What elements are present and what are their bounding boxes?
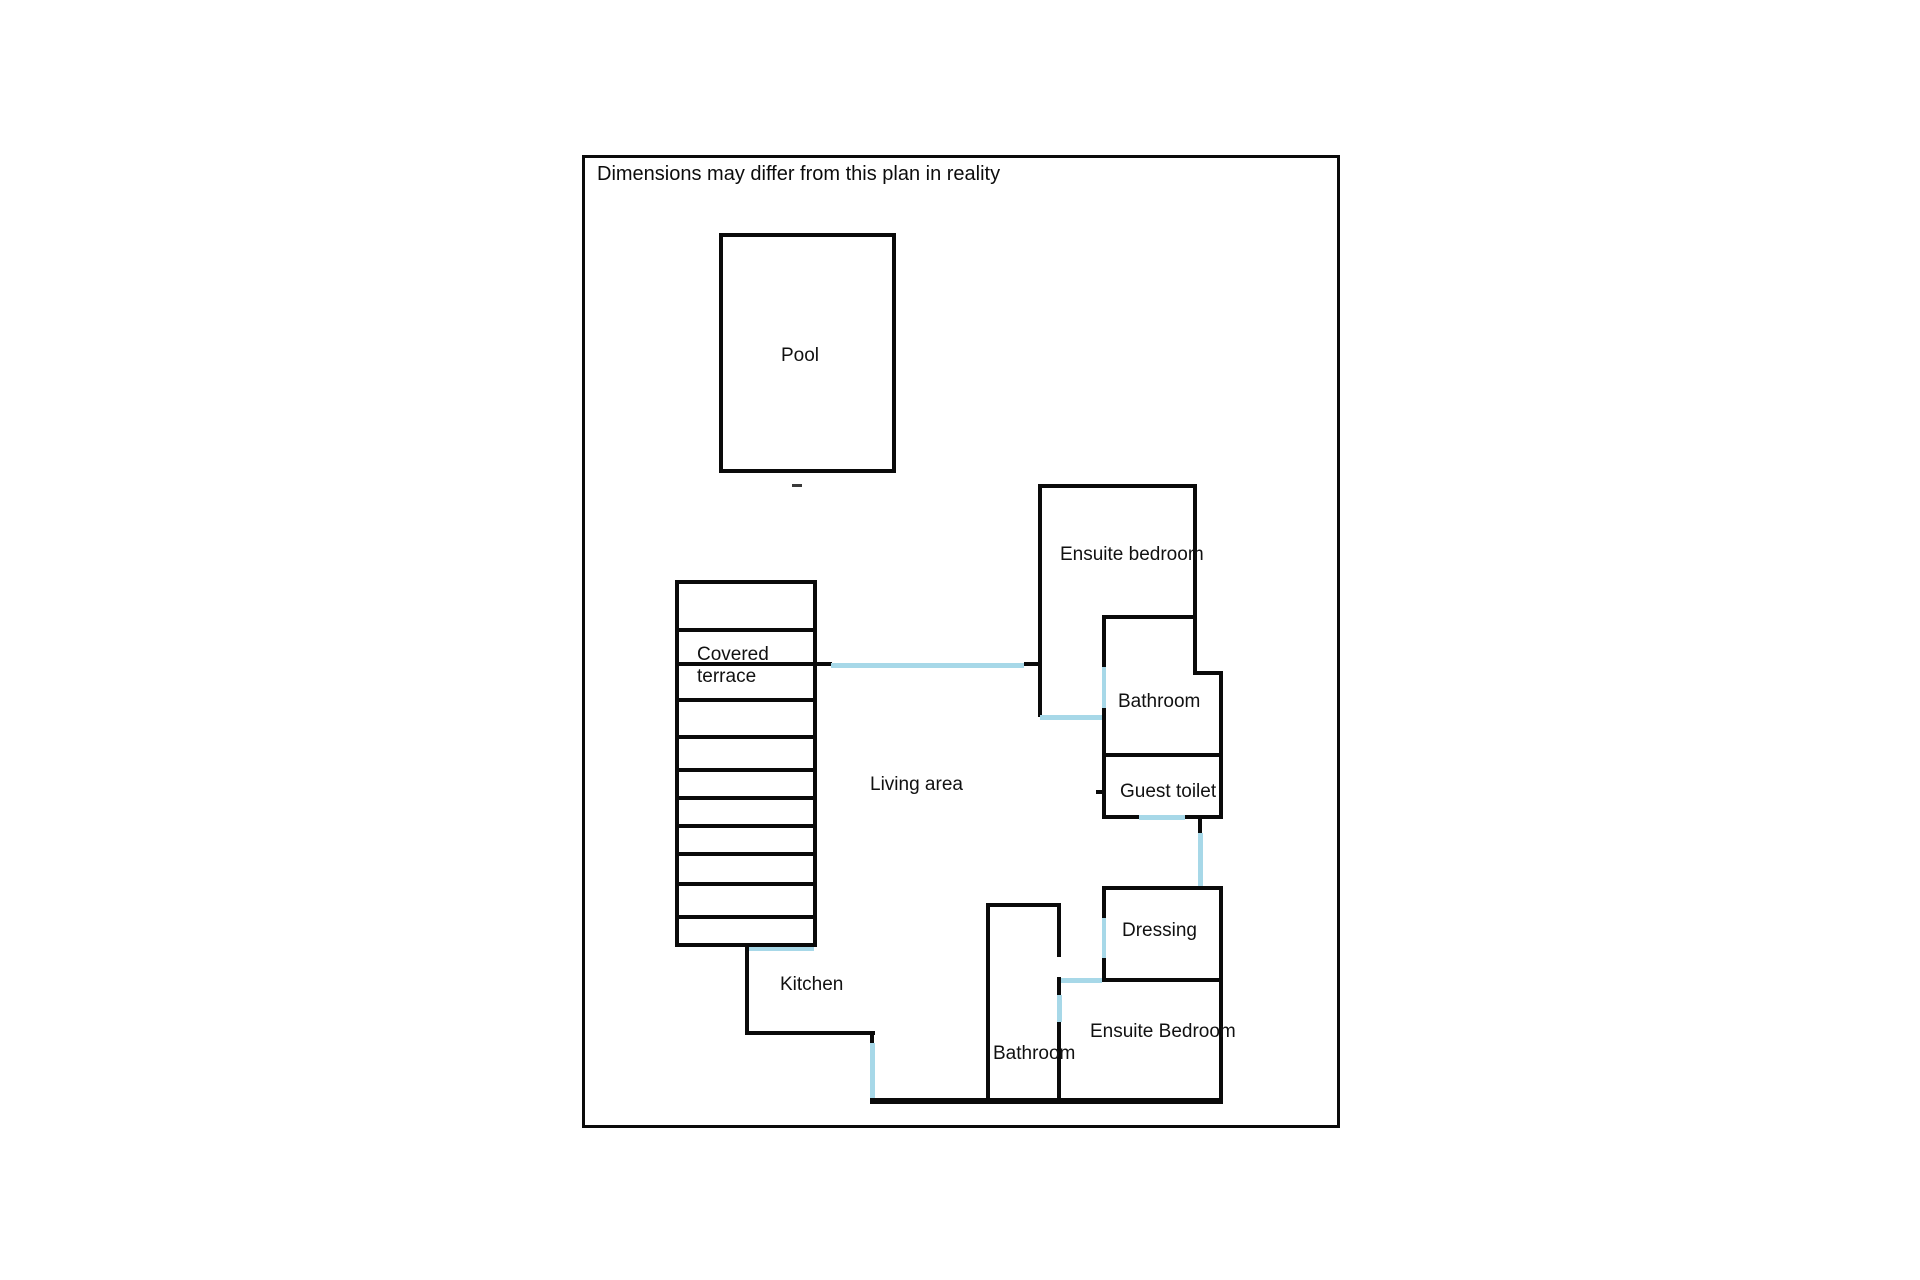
living-area-label: Living area: [870, 774, 963, 796]
covered-terrace-label-line1: Covered: [697, 644, 769, 666]
bathroom-lower-right-wall: [1057, 903, 1061, 957]
ensuite-bedroom-upper-left-wall: [1038, 484, 1042, 717]
pool-label: Pool: [781, 345, 819, 367]
corridor-opening: [1198, 833, 1203, 886]
plan-disclaimer: Dimensions may differ from this plan in …: [597, 163, 1000, 186]
wall-tick: [1096, 790, 1102, 794]
bathroom-lower-left-wall: [986, 903, 990, 1103]
terrace-step-line: [679, 628, 813, 632]
ensuite-bedroom-upper-bottom-wall: [1102, 615, 1197, 619]
bathroom-guest-toilet-divider-wall: [1102, 753, 1223, 757]
terrace-step-line: [679, 915, 813, 919]
bathroom-upper-label: Bathroom: [1118, 691, 1200, 713]
bedroom-entry-opening: [1061, 978, 1102, 983]
wall-tick: [1024, 662, 1039, 666]
terrace-step-line: [679, 882, 813, 886]
terrace-step-line: [679, 768, 813, 772]
wall-tick: [815, 662, 832, 666]
kitchen-bottom-wall: [745, 1031, 875, 1035]
terrace-step-line: [679, 698, 813, 702]
guest-toilet-door-opening: [1139, 815, 1185, 820]
living-area-window-opening: [831, 663, 1024, 668]
dressing-bedroom-right-wall: [1219, 886, 1223, 1104]
bathroom-upper-right-wall: [1219, 671, 1223, 818]
guest-toilet-bottom-wall: [1185, 815, 1223, 819]
bathroom-upper-left-wall: [1102, 708, 1106, 755]
kitchen-left-wall: [745, 947, 749, 1035]
ensuite-bedroom-upper-door-opening: [1040, 715, 1102, 720]
ensuite-bedroom-upper-right-wall: [1193, 484, 1197, 675]
terrace-step-line: [679, 852, 813, 856]
bathroom-lower-right-wall: [1057, 977, 1061, 995]
covered-terrace-outline: [675, 580, 817, 947]
guest-toilet-label: Guest toilet: [1120, 781, 1216, 803]
ensuite-bedroom-upper-top-wall: [1038, 484, 1197, 488]
bathroom-lower-top-wall: [986, 903, 1061, 907]
floor-plan: Dimensions may differ from this plan in …: [0, 0, 1920, 1280]
bathroom-lower-label: Bathroom: [993, 1043, 1075, 1065]
guest-toilet-bottom-wall: [1102, 815, 1139, 819]
dressing-bottom-wall: [1102, 978, 1223, 982]
bathroom-upper-door-opening: [1102, 667, 1106, 708]
terrace-step-line: [679, 735, 813, 739]
covered-terrace-label-line2: terrace: [697, 666, 756, 688]
pool-dash-mark: [792, 484, 802, 487]
terrace-step-line: [679, 796, 813, 800]
ensuite-bedroom-upper-label: Ensuite bedroom: [1060, 544, 1204, 566]
guest-toilet-left-wall: [1102, 757, 1106, 818]
hall-opening: [870, 1043, 875, 1098]
wall-tick: [1198, 819, 1202, 833]
terrace-step-line: [679, 824, 813, 828]
wall-tick: [870, 1031, 874, 1043]
dressing-left-wall: [1102, 886, 1106, 918]
bathroom-upper-left-wall: [1102, 615, 1106, 667]
kitchen-label: Kitchen: [780, 974, 843, 996]
ensuite-bedroom-lower-label: Ensuite Bedroom: [1090, 1021, 1236, 1043]
dressing-label: Dressing: [1122, 920, 1197, 942]
house-bottom-wall: [870, 1098, 1223, 1104]
kitchen-terrace-opening: [748, 947, 814, 951]
dressing-door-opening: [1102, 918, 1106, 958]
dressing-top-wall: [1102, 886, 1223, 890]
bathroom-lower-door-opening: [1057, 995, 1062, 1022]
